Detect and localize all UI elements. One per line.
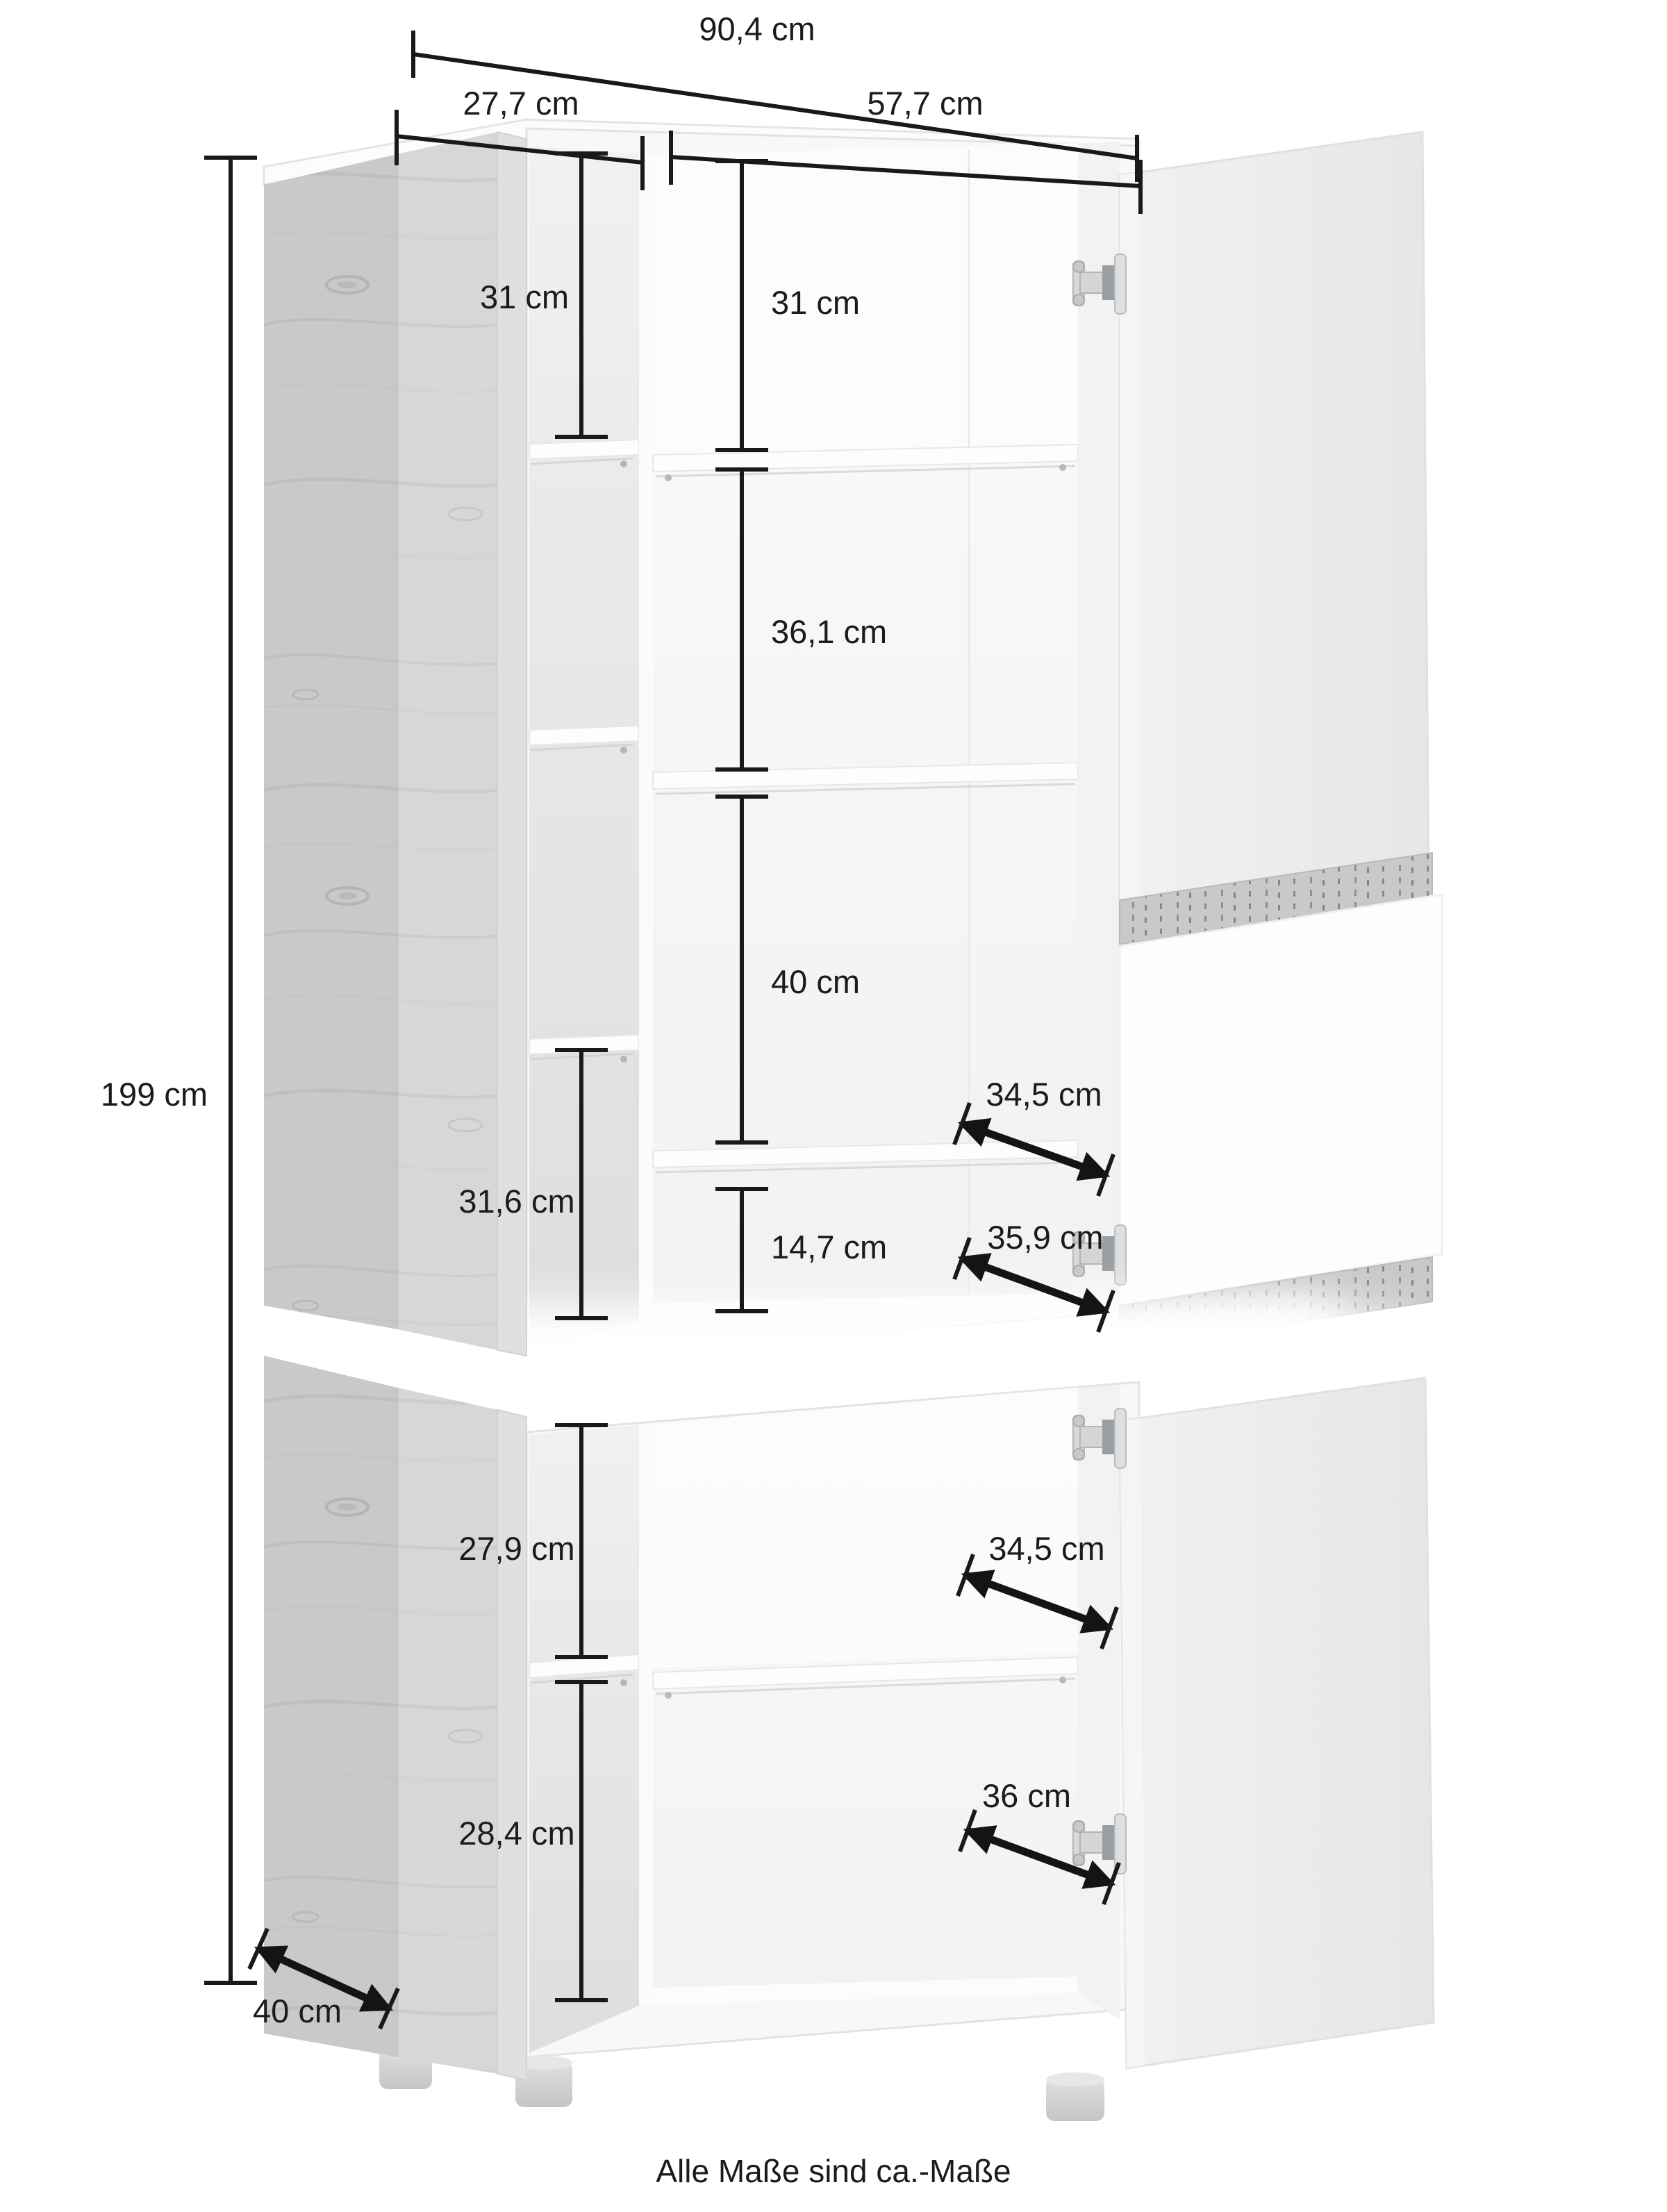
top-compartment-light — [653, 143, 1078, 458]
glass-panel — [1120, 895, 1442, 1306]
door-face — [1120, 1378, 1434, 2068]
dim-lower-left-bottom-compartment-label: 28,4 cm — [458, 1815, 574, 1852]
shelf — [529, 726, 639, 745]
door-panel-shade — [264, 1356, 397, 2057]
shelf-pin — [620, 1056, 627, 1063]
foot — [1046, 2072, 1104, 2121]
shelf-pin — [620, 1679, 627, 1686]
shelf-pin — [665, 1692, 672, 1699]
right-wall-upper — [1078, 142, 1120, 1328]
shelf-pin — [620, 747, 627, 754]
dim-left-bottom-compartment-label: 31,6 cm — [458, 1183, 574, 1220]
shelf-pin — [620, 460, 627, 467]
center-divider — [639, 1424, 653, 2006]
dim-upper-main-compartment-label: 31 cm — [771, 284, 860, 321]
dim-left-section-label: 27,7 cm — [463, 85, 579, 122]
lower-cabinet-carcass — [526, 1382, 1139, 2057]
dim-main-bottom-compartment-label: 14,7 cm — [771, 1229, 887, 1265]
cabinet-diagram-svg: 90,4 cm 27,7 cm 57,7 cm 199 cm 40 cm 31 … — [0, 0, 1667, 2212]
wood-door-upper — [264, 132, 526, 1356]
dim-lower-shelf-depth-bottom-label: 36 cm — [982, 1777, 1071, 1814]
column-back — [529, 1425, 639, 2053]
right-wall-lower — [1078, 1385, 1120, 2020]
dim-total-height-label: 199 cm — [101, 1076, 208, 1113]
dim-lower-left-compartment-label: 27,9 cm — [458, 1530, 574, 1567]
right-door-upper — [1120, 132, 1442, 1350]
shelf-pin — [665, 474, 672, 481]
dim-lower-shelf-depth-top-label: 34,5 cm — [988, 1530, 1104, 1567]
shelf — [529, 440, 639, 459]
door-edge — [497, 1410, 526, 2080]
door-edge — [497, 132, 526, 1356]
door-panel-shade — [264, 154, 397, 1329]
dim-total-height: 199 cm — [101, 158, 257, 1983]
left-column-interior-lower — [529, 1425, 639, 2053]
door-panel-light — [397, 1388, 497, 2074]
dim-main-section-label: 57,7 cm — [867, 85, 983, 122]
note-text: Alle Maße sind ca.-Maße — [656, 2153, 1011, 2189]
right-door-lower — [1120, 1378, 1434, 2068]
dim-main-second-compartment-label: 36,1 cm — [771, 613, 887, 650]
main-interior-lower — [653, 1388, 1078, 2004]
dim-upper-left-compartment-label: 31 cm — [480, 278, 569, 315]
dim-total-width-label: 90,4 cm — [699, 10, 815, 47]
center-divider — [639, 154, 653, 1320]
shelf-pin — [1059, 1677, 1066, 1683]
top-compartment-light — [653, 1388, 1078, 1668]
shelf-pin — [1059, 464, 1066, 471]
dim-shelf-depth-lower-label: 35,9 cm — [987, 1219, 1103, 1256]
dim-shelf-depth-upper-label: 34,5 cm — [986, 1076, 1102, 1113]
product-dimension-diagram: 90,4 cm 27,7 cm 57,7 cm 199 cm 40 cm 31 … — [0, 0, 1667, 2212]
dim-depth-label: 40 cm — [253, 1993, 342, 2029]
left-column-interior-upper — [529, 146, 639, 1356]
dim-main-third-compartment-label: 40 cm — [771, 963, 860, 1000]
